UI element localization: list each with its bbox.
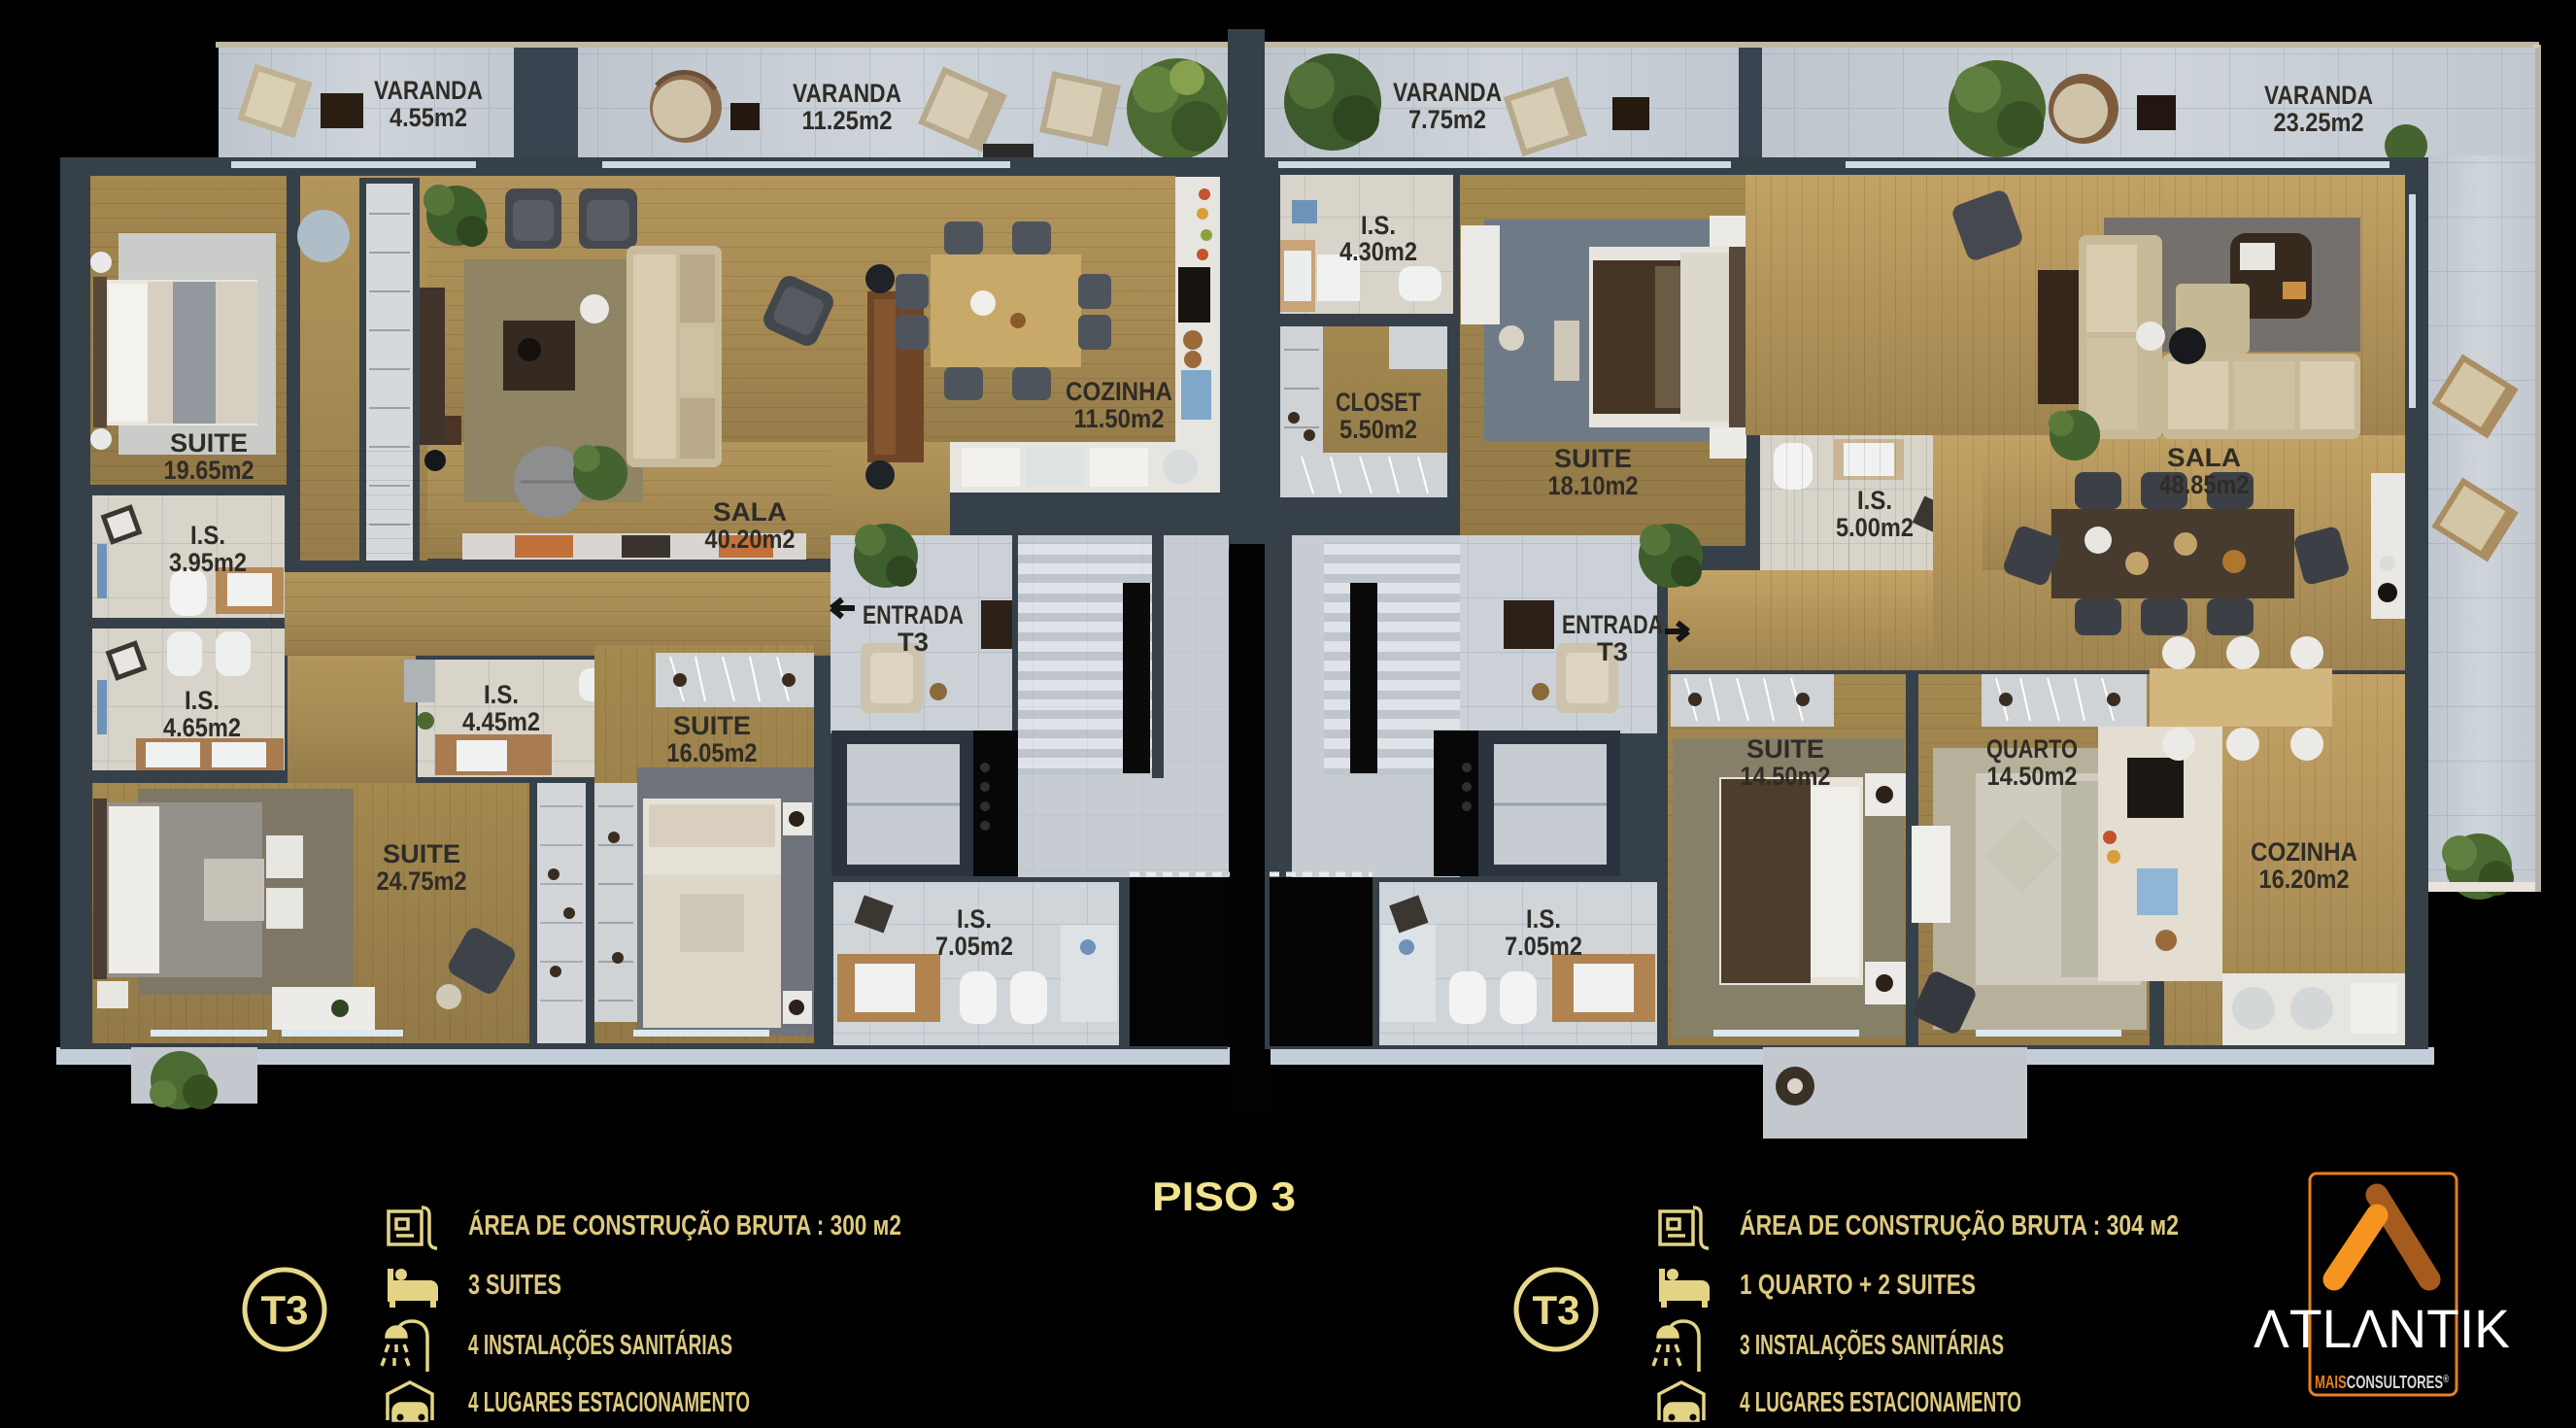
svg-text:4.30m2: 4.30m2	[1339, 237, 1417, 266]
svg-text:16.05m2: 16.05m2	[667, 738, 758, 767]
svg-text:SALA: SALA	[2167, 443, 2241, 472]
svg-text:VARANDA: VARANDA	[1393, 78, 1502, 107]
svg-text:T3: T3	[1532, 1287, 1579, 1333]
svg-text:1 QUARTO + 2 SUITES: 1 QUARTO + 2 SUITES	[1740, 1270, 1976, 1301]
svg-text:I.S.: I.S.	[484, 680, 519, 709]
svg-text:ENTRADA: ENTRADA	[863, 600, 964, 629]
svg-text:I.S.: I.S.	[1857, 486, 1892, 515]
svg-text:5.50m2: 5.50m2	[1339, 415, 1417, 444]
svg-text:4 LUGARES ESTACIONAMENTO: 4 LUGARES ESTACIONAMENTO	[1740, 1387, 2021, 1418]
svg-text:3.95m2: 3.95m2	[169, 548, 247, 577]
svg-text:7.75m2: 7.75m2	[1408, 105, 1486, 134]
svg-text:4.45m2: 4.45m2	[462, 707, 540, 736]
svg-text:16.20m2: 16.20m2	[2259, 865, 2350, 894]
svg-text:I.S.: I.S.	[957, 904, 992, 934]
svg-text:COZINHA: COZINHA	[2251, 837, 2357, 867]
svg-text:SUITE: SUITE	[1554, 444, 1632, 473]
svg-text:T3: T3	[260, 1287, 308, 1333]
svg-text:11.25m2: 11.25m2	[802, 106, 893, 135]
svg-text:4.55m2: 4.55m2	[390, 103, 467, 132]
svg-text:ÁREA DE CONSTRUÇÃO BRUTA : 30: ÁREA DE CONSTRUÇÃO BRUTA : 300 м2	[468, 1208, 901, 1241]
svg-text:7.05m2: 7.05m2	[1505, 932, 1582, 961]
svg-text:4 LUGARES ESTACIONAMENTO: 4 LUGARES ESTACIONAMENTO	[468, 1387, 750, 1418]
svg-text:14.50m2: 14.50m2	[1741, 762, 1831, 791]
svg-text:23.25m2: 23.25m2	[2274, 108, 2364, 137]
svg-text:14.50m2: 14.50m2	[1987, 762, 2078, 791]
svg-text:7.05m2: 7.05m2	[935, 932, 1013, 961]
svg-text:4.65m2: 4.65m2	[163, 713, 241, 742]
svg-text:QUARTO: QUARTO	[1986, 734, 2078, 764]
svg-text:I.S.: I.S.	[190, 521, 225, 550]
svg-text:ÁREA DE CONSTRUÇÃO BRUTA : 30: ÁREA DE CONSTRUÇÃO BRUTA : 304 м2	[1740, 1208, 2179, 1241]
svg-text:ENTRADA: ENTRADA	[1562, 610, 1663, 639]
svg-text:SUITE: SUITE	[673, 711, 751, 740]
svg-text:SUITE: SUITE	[170, 428, 248, 458]
svg-text:T3: T3	[898, 628, 929, 657]
svg-text:I.S.: I.S.	[1361, 211, 1396, 240]
svg-text:VARANDA: VARANDA	[793, 79, 901, 108]
svg-text:18.10m2: 18.10m2	[1548, 471, 1639, 500]
svg-text:SUITE: SUITE	[383, 839, 460, 868]
svg-text:24.75m2: 24.75m2	[377, 867, 467, 896]
svg-text:SUITE: SUITE	[1746, 734, 1824, 764]
svg-text:PISO 3: PISO 3	[1152, 1173, 1296, 1219]
svg-text:COZINHA: COZINHA	[1066, 377, 1172, 406]
svg-text:CLOSET: CLOSET	[1336, 388, 1421, 417]
svg-text:48.85m2: 48.85m2	[2159, 470, 2250, 499]
svg-text:T3: T3	[1597, 637, 1628, 666]
svg-text:VARANDA: VARANDA	[2264, 81, 2373, 110]
svg-text:SALA: SALA	[713, 497, 787, 527]
svg-text:MAISCONSULTORES®: MAISCONSULTORES®	[2315, 1373, 2449, 1392]
svg-text:I.S.: I.S.	[1526, 904, 1561, 934]
svg-text:VARANDA: VARANDA	[374, 76, 483, 105]
svg-text:I.S.: I.S.	[185, 686, 220, 715]
svg-text:3 SUITES: 3 SUITES	[468, 1270, 561, 1301]
svg-text:11.50m2: 11.50m2	[1074, 404, 1165, 433]
svg-text:3 INSTALAÇÕES SANITÁRIAS: 3 INSTALAÇÕES SANITÁRIAS	[1740, 1328, 2004, 1361]
svg-text:5.00m2: 5.00m2	[1836, 513, 1914, 542]
svg-text:40.20m2: 40.20m2	[705, 525, 796, 554]
svg-text:ΛTLΛNTIK: ΛTLΛNTIK	[2254, 1298, 2510, 1359]
svg-text:19.65m2: 19.65m2	[164, 456, 254, 485]
svg-text:4 INSTALAÇÕES SANITÁRIAS: 4 INSTALAÇÕES SANITÁRIAS	[468, 1328, 732, 1361]
